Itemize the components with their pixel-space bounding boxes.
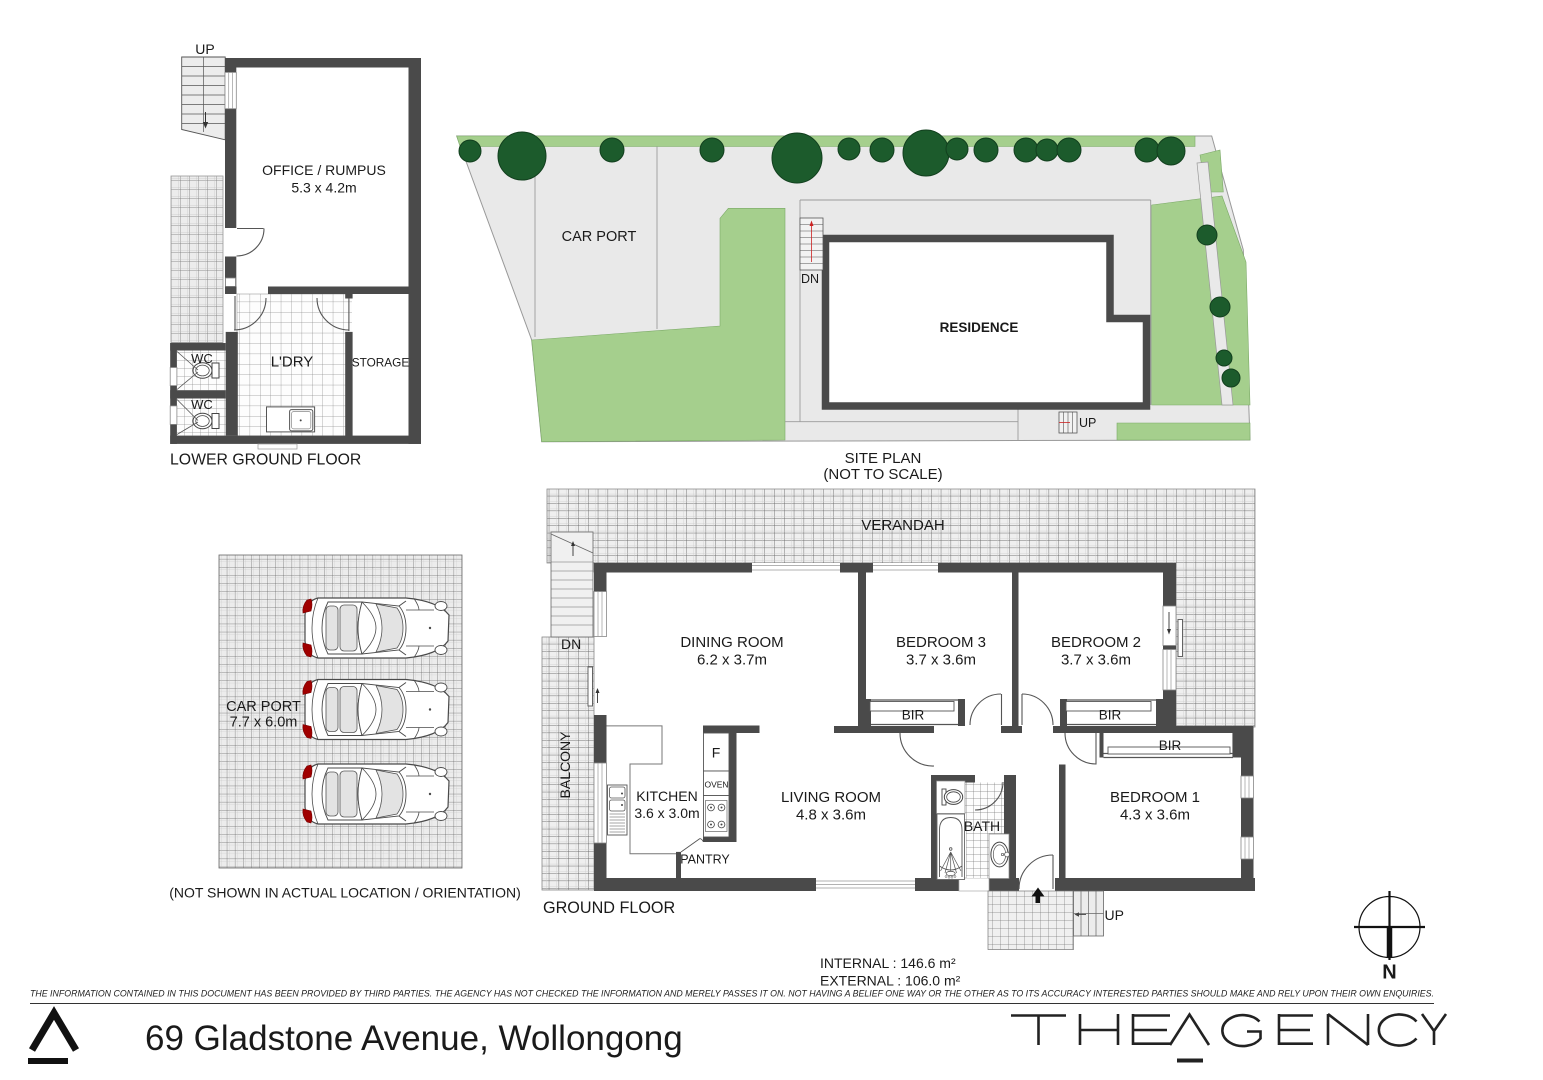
svg-text:LOWER GROUND FLOOR: LOWER GROUND FLOOR xyxy=(170,452,361,469)
svg-text:4.3 x 3.6m: 4.3 x 3.6m xyxy=(1120,807,1190,824)
svg-text:BATH: BATH xyxy=(964,818,1000,834)
svg-text:WC: WC xyxy=(191,351,213,366)
svg-text:BIR: BIR xyxy=(902,708,925,723)
svg-text:4.8 x 3.6m: 4.8 x 3.6m xyxy=(796,807,866,824)
svg-text:3.7 x 3.6m: 3.7 x 3.6m xyxy=(1061,652,1131,669)
svg-text:KITCHEN: KITCHEN xyxy=(636,788,697,804)
svg-text:BALCONY: BALCONY xyxy=(557,731,573,799)
svg-text:3.7 x 3.6m: 3.7 x 3.6m xyxy=(906,652,976,669)
svg-text:INTERNAL : 146.6 m²: INTERNAL : 146.6 m² xyxy=(820,955,956,971)
svg-text:(NOT SHOWN IN ACTUAL LOCATION: (NOT SHOWN IN ACTUAL LOCATION / ORIENTAT… xyxy=(169,885,521,901)
svg-text:RESIDENCE: RESIDENCE xyxy=(940,320,1019,335)
svg-text:OVEN: OVEN xyxy=(704,780,728,790)
svg-text:BIR: BIR xyxy=(1099,708,1122,723)
svg-text:DN: DN xyxy=(801,272,819,286)
svg-text:6.2 x 3.7m: 6.2 x 3.7m xyxy=(697,652,767,669)
svg-text:GROUND FLOOR: GROUND FLOOR xyxy=(543,899,675,917)
svg-text:3.6 x 3.0m: 3.6 x 3.0m xyxy=(634,805,699,821)
svg-text:7.7 x 6.0m: 7.7 x 6.0m xyxy=(230,715,298,731)
svg-text:EXTERNAL : 106.0 m²: EXTERNAL : 106.0 m² xyxy=(820,973,961,989)
svg-text:CAR PORT: CAR PORT xyxy=(226,699,301,715)
svg-text:DINING ROOM: DINING ROOM xyxy=(680,634,783,651)
svg-text:UP: UP xyxy=(195,41,214,57)
svg-text:DN: DN xyxy=(561,636,581,652)
svg-text:N: N xyxy=(1382,962,1396,984)
svg-text:UP: UP xyxy=(1105,907,1124,923)
svg-text:THE INFORMATION CONTAINED IN T: THE INFORMATION CONTAINED IN THIS DOCUME… xyxy=(30,989,1434,999)
svg-text:5.3 x 4.2m: 5.3 x 4.2m xyxy=(291,180,356,196)
svg-text:BEDROOM 1: BEDROOM 1 xyxy=(1110,789,1200,806)
svg-text:BEDROOM 3: BEDROOM 3 xyxy=(896,634,986,651)
svg-text:SITE PLAN: SITE PLAN xyxy=(845,450,922,467)
svg-text:WC: WC xyxy=(191,397,213,412)
svg-text:BEDROOM 2: BEDROOM 2 xyxy=(1051,634,1141,651)
svg-text:BIR: BIR xyxy=(1159,738,1182,753)
svg-text:69 Gladstone Avenue, Wollongon: 69 Gladstone Avenue, Wollongong xyxy=(145,1019,683,1058)
svg-text:VERANDAH: VERANDAH xyxy=(861,517,944,534)
svg-text:(NOT TO SCALE): (NOT TO SCALE) xyxy=(823,466,942,483)
svg-text:CAR PORT: CAR PORT xyxy=(562,229,637,245)
svg-text:OFFICE / RUMPUS: OFFICE / RUMPUS xyxy=(262,162,386,178)
svg-text:STORAGE: STORAGE xyxy=(352,356,410,370)
svg-text:L'DRY: L'DRY xyxy=(271,354,314,371)
svg-text:LIVING ROOM: LIVING ROOM xyxy=(781,789,881,806)
svg-text:PANTRY: PANTRY xyxy=(680,853,730,867)
svg-text:F: F xyxy=(712,745,721,761)
svg-text:UP: UP xyxy=(1079,416,1096,430)
